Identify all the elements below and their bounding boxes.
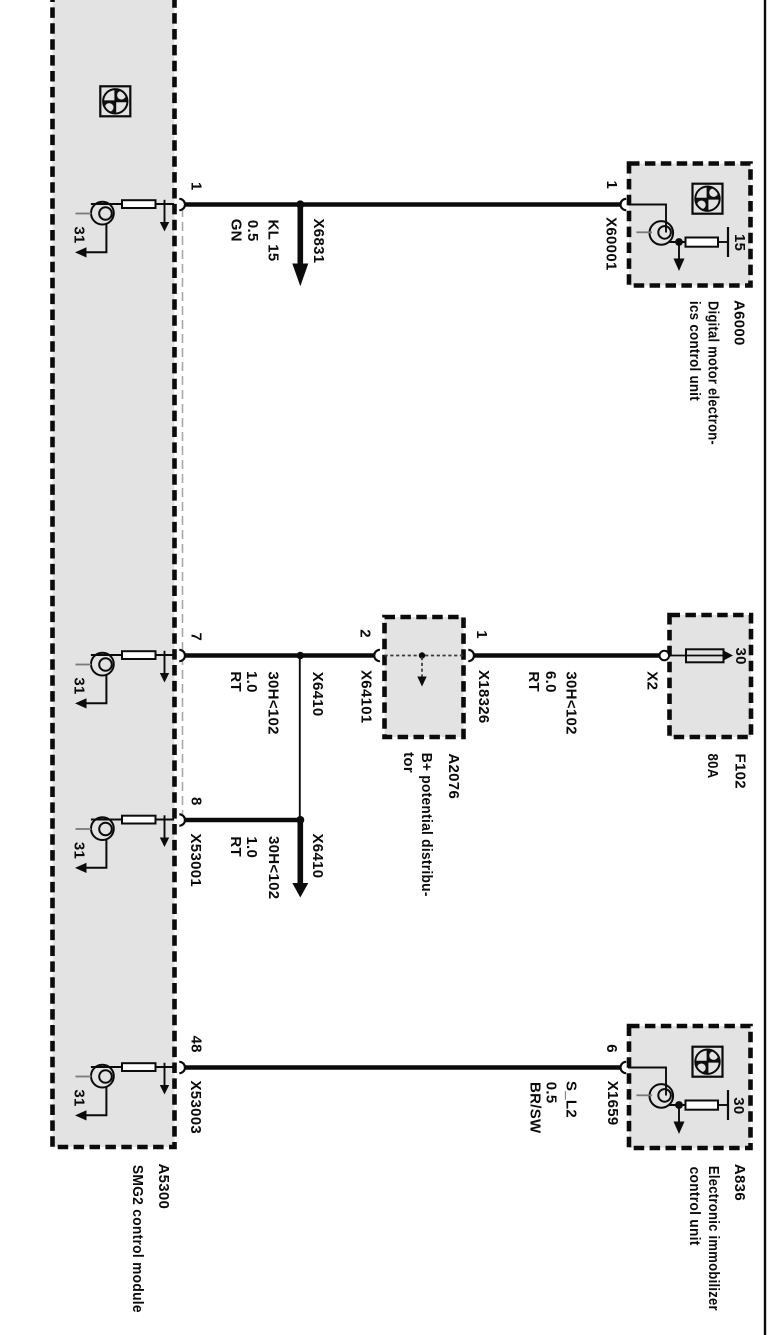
svg-text:1.0: 1.0 — [243, 671, 260, 693]
svg-text:B+ potential distribu-: B+ potential distribu- — [418, 753, 435, 897]
svg-text:A6000: A6000 — [731, 300, 748, 346]
svg-text:X64101: X64101 — [358, 670, 375, 724]
svg-text:30H<102: 30H<102 — [563, 671, 580, 734]
svg-text:X60001: X60001 — [602, 217, 619, 271]
svg-text:KL 15: KL 15 — [265, 220, 282, 262]
svg-text:X6410: X6410 — [309, 672, 326, 717]
svg-text:GN: GN — [227, 219, 244, 242]
svg-text:1: 1 — [473, 630, 490, 639]
svg-text:A836: A836 — [731, 1164, 748, 1201]
svg-text:RT: RT — [227, 836, 244, 857]
svg-text:control unit: control unit — [686, 1167, 703, 1246]
svg-text:S_L2: S_L2 — [563, 1081, 580, 1118]
svg-text:RT: RT — [525, 671, 542, 692]
svg-text:A5300: A5300 — [155, 1164, 172, 1210]
svg-text:F102: F102 — [732, 754, 749, 789]
svg-text:X18326: X18326 — [475, 670, 492, 724]
svg-text:8: 8 — [188, 797, 205, 806]
svg-text:Digital motor electron-: Digital motor electron- — [705, 301, 722, 445]
svg-text:2: 2 — [357, 629, 374, 638]
svg-text:SMG2 control module: SMG2 control module — [129, 1165, 146, 1313]
svg-text:1.0: 1.0 — [243, 836, 260, 858]
svg-text:15: 15 — [731, 234, 748, 251]
svg-text:BR/SW: BR/SW — [527, 1082, 544, 1134]
svg-text:30: 30 — [732, 648, 749, 665]
svg-text:7: 7 — [188, 633, 205, 642]
svg-text:A2076: A2076 — [445, 753, 462, 799]
svg-text:X2: X2 — [643, 671, 660, 690]
svg-text:X6410: X6410 — [309, 834, 326, 879]
svg-text:ics control unit: ics control unit — [686, 301, 703, 401]
svg-text:1: 1 — [188, 182, 205, 191]
svg-text:X1659: X1659 — [604, 1081, 621, 1126]
svg-text:80A: 80A — [704, 754, 721, 779]
svg-text:Electronic immobilizer: Electronic immobilizer — [705, 1166, 722, 1311]
svg-text:30: 30 — [730, 1097, 747, 1114]
svg-text:X53003: X53003 — [187, 1081, 204, 1135]
svg-text:6.0: 6.0 — [542, 671, 559, 693]
svg-text:6: 6 — [603, 1044, 620, 1053]
svg-text:RT: RT — [227, 671, 244, 692]
svg-text:0.5: 0.5 — [543, 1082, 560, 1104]
svg-text:30H<102: 30H<102 — [265, 836, 282, 899]
svg-text:0.5: 0.5 — [244, 220, 261, 242]
svg-text:tor: tor — [400, 752, 417, 773]
svg-text:X6831: X6831 — [310, 219, 327, 264]
svg-text:48: 48 — [188, 1036, 205, 1053]
svg-text:X53001: X53001 — [187, 834, 204, 888]
svg-text:1: 1 — [603, 181, 620, 190]
svg-text:30H<102: 30H<102 — [265, 671, 282, 734]
